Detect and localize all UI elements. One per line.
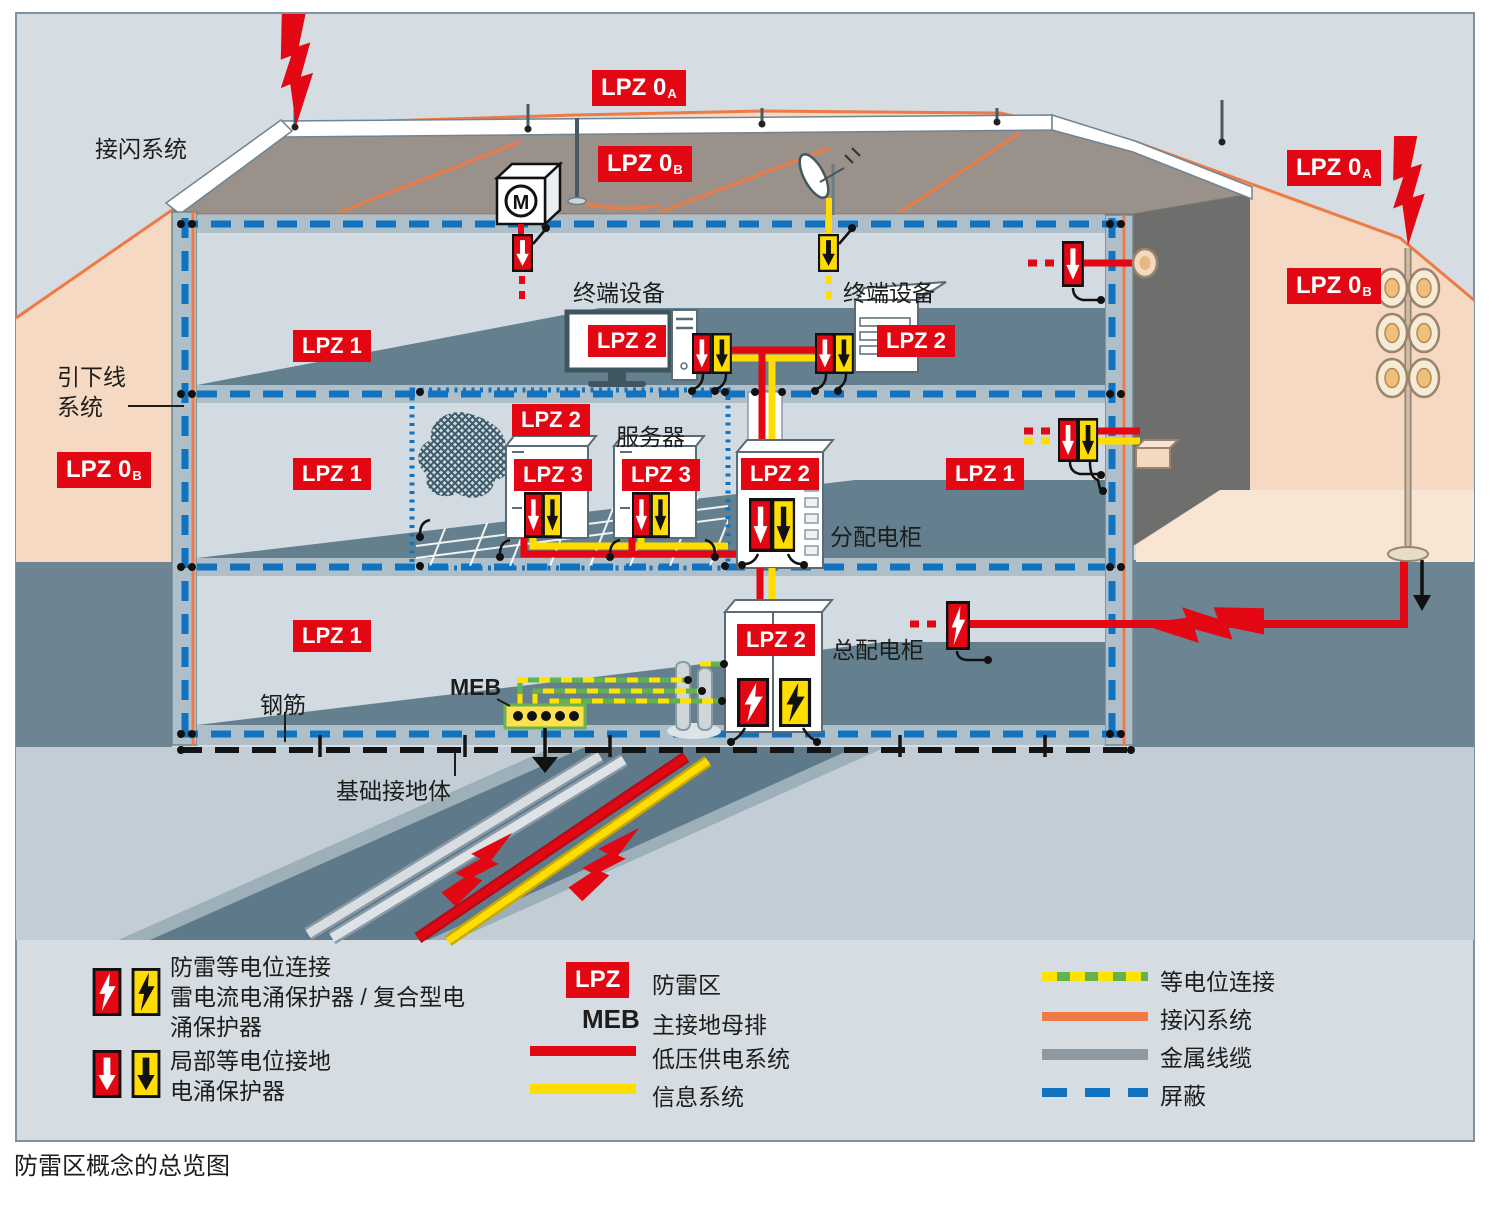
rebar-label: 钢筋 (260, 686, 306, 720)
legend-shield-label: 屏蔽 (1160, 1077, 1206, 1111)
legend-info-label: 信息系统 (652, 1078, 744, 1112)
main-distribution-cabinet (725, 600, 832, 746)
lpz0b-badge-right: LPZ 0B (1287, 268, 1381, 304)
metal-pipe (676, 662, 690, 730)
motor-letter: M (513, 192, 530, 214)
lpz1-badge-floor1: LPZ 1 (293, 330, 371, 362)
legend-air-termination-label: 接闪系统 (1160, 1001, 1252, 1035)
lpz0b-badge-roof: LPZ 0B (598, 146, 692, 182)
server-label: 服务器 (616, 418, 685, 452)
legend-meb-label: 主接地母排 (652, 1006, 767, 1040)
lpz0a-badge-top: LPZ 0A (592, 70, 686, 106)
spd-bolt-red-icon (92, 968, 122, 1016)
spd-arrow-red-icon (693, 334, 711, 373)
main-cabinet-label: 总配电柜 (832, 631, 924, 665)
lpz0a-badge-right: LPZ 0A (1287, 150, 1381, 186)
legend-power-label: 低压供电系统 (652, 1040, 790, 1074)
lpz3-badge-server1: LPZ 3 (514, 459, 592, 491)
legend-combo-spd-label: 防雷等电位连接 雷电流电涌保护器 / 复合型电 涌保护器 (170, 952, 465, 1042)
figure-caption: 防雷区概念的总览图 (14, 1146, 230, 1181)
spd-arrow-yellow-icon (773, 500, 794, 551)
shield-swatch (1042, 1088, 1148, 1097)
terminal-device-label-right: 终端设备 (843, 274, 935, 308)
spd-arrow-red-icon (1063, 242, 1083, 285)
metal-cable-swatch (1042, 1049, 1148, 1060)
spd-bolt-yellow-icon (781, 679, 810, 725)
air-termination-label: 接闪系统 (95, 130, 187, 164)
lpz3-badge-server2: LPZ 3 (622, 459, 700, 491)
spd-arrow-yellow-icon (544, 493, 561, 536)
legend-local-spd-label: 局部等电位接地 电涌保护器 (170, 1046, 331, 1106)
equipotential-swatch (1042, 972, 1148, 981)
spd-arrow-yellow-icon (652, 493, 669, 536)
lpz0b-badge-left: LPZ 0B (57, 452, 151, 488)
spd-bolt-red-icon (947, 602, 969, 648)
lpz2-badge-main-cabinet: LPZ 2 (737, 624, 815, 656)
power-line-swatch (530, 1046, 636, 1056)
lpz2-badge-copier: LPZ 2 (877, 325, 955, 357)
lpz2-badge-monitor: LPZ 2 (588, 325, 666, 357)
spd-arrow-red-icon (92, 1050, 122, 1098)
spd-arrow-red-icon (513, 235, 532, 271)
spd-arrow-yellow-icon (819, 235, 838, 271)
cable-duct (1136, 448, 1170, 468)
air-termination-swatch (1042, 1012, 1148, 1021)
spd-arrow-yellow-icon (1079, 419, 1097, 460)
lpz2-badge-dist-cabinet: LPZ 2 (741, 458, 819, 490)
spd-bolt-red-icon (739, 679, 768, 725)
legend-equipotential-label: 等电位连接 (1160, 963, 1275, 997)
legend-lpz-badge: LPZ (566, 962, 629, 998)
spd-arrow-red-icon (1059, 419, 1077, 460)
lpz-overview-diagram: M (0, 0, 1496, 1205)
down-conductor-label: 引下线系统 (57, 362, 126, 422)
spd-arrow-red-icon (750, 500, 771, 551)
spd-arrow-yellow-icon (835, 334, 853, 373)
motor-box: M (497, 164, 560, 224)
insulators (1377, 269, 1439, 397)
lpz2-badge-server-room: LPZ 2 (512, 404, 590, 436)
legend-meb-abbr: MEB (582, 1004, 640, 1035)
legend-metal-label: 金属线缆 (1160, 1039, 1252, 1073)
spd-bolt-yellow-icon (131, 968, 161, 1016)
lpz1-badge-ground: LPZ 1 (293, 620, 371, 652)
spd-arrow-red-icon (633, 493, 650, 536)
info-line-swatch (530, 1084, 636, 1094)
spd-arrow-yellow-icon (713, 334, 731, 373)
lpz1-badge-floor2: LPZ 1 (293, 458, 371, 490)
spd-arrow-red-icon (525, 493, 542, 536)
terminal-device-label-left: 终端设备 (573, 274, 665, 308)
lpz1-badge-floor2-right: LPZ 1 (946, 458, 1024, 490)
spd-arrow-red-icon (816, 334, 834, 373)
meb-label: MEB (450, 674, 501, 701)
distribution-cabinet-label: 分配电柜 (830, 518, 922, 552)
legend-lpz-label: 防雷区 (652, 966, 721, 1000)
foundation-earth-label: 基础接地体 (336, 772, 451, 806)
spd-arrow-yellow-icon (131, 1050, 161, 1098)
